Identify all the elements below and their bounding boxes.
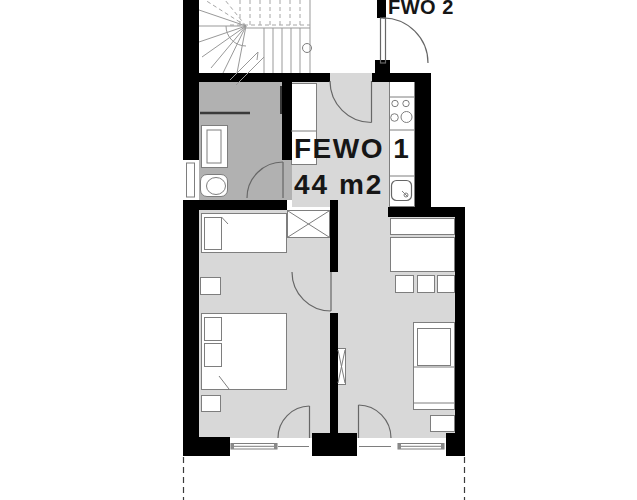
nightstand xyxy=(430,415,455,432)
nightstand xyxy=(201,395,221,412)
toilet xyxy=(200,174,228,197)
stair-post-symbol xyxy=(303,44,312,53)
wall-bottom-right-pier xyxy=(446,433,465,456)
bathroom-door-threshold xyxy=(282,160,292,200)
chair xyxy=(395,275,414,293)
wall-bedroom-north xyxy=(183,200,287,210)
living-bed-pillow xyxy=(417,328,451,366)
area-label: 44 m2 xyxy=(294,169,383,201)
entrance-threshold xyxy=(330,73,372,82)
window-bedroom-south xyxy=(231,444,277,450)
bathroom-vanity xyxy=(201,125,228,168)
wall-kitchen-east xyxy=(415,73,431,208)
single-bed-pillow xyxy=(204,217,222,250)
wall-living-north xyxy=(388,207,465,217)
window-bathroom-west xyxy=(187,163,195,197)
wall-left-lower xyxy=(183,200,199,443)
radiator xyxy=(337,348,346,385)
floor-plan-canvas: FEWO 1 44 m2 FWO 2 xyxy=(0,0,637,500)
chair xyxy=(437,275,455,293)
sideboard-bench xyxy=(390,218,455,235)
wall-fewo2-door-pier xyxy=(375,60,390,73)
dining-table xyxy=(390,237,455,272)
apartment-label: FEWO 1 xyxy=(294,133,410,165)
neighbor-apartment-label: FWO 2 xyxy=(388,0,454,19)
fewo2-entrance-door xyxy=(381,18,429,63)
wall-bedroom-living-lower xyxy=(330,313,338,438)
wall-left-upper xyxy=(183,0,199,160)
wall-bottom-mid-pier xyxy=(312,433,357,456)
wall-right xyxy=(455,217,465,438)
double-bed-pillow xyxy=(204,317,222,341)
shaft-closet-box xyxy=(287,210,330,238)
wall-top-left xyxy=(199,73,330,82)
wall-bottom-left-pier xyxy=(183,437,230,456)
wall-bathroom-east xyxy=(282,81,292,160)
wall-bedroom-hall-upper xyxy=(330,200,338,272)
chair xyxy=(417,275,435,293)
bedroom-door-threshold xyxy=(330,272,338,313)
wall-stub-top-right xyxy=(377,0,386,18)
double-bed-pillow xyxy=(204,343,222,367)
nightstand xyxy=(200,277,221,295)
window-living-south xyxy=(398,444,444,450)
